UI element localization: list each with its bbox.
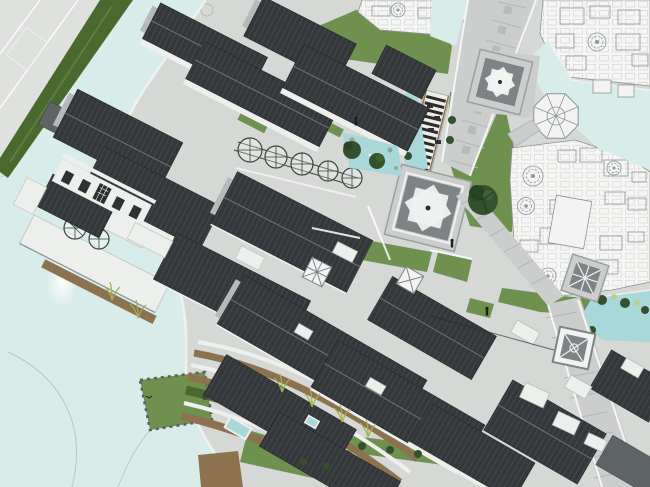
model-viewport[interactable]	[0, 0, 650, 487]
figure	[485, 307, 488, 316]
tree	[343, 141, 361, 159]
tree	[468, 185, 498, 215]
figure	[450, 239, 453, 248]
tree	[369, 153, 385, 169]
model-render	[0, 0, 650, 487]
street-medallion	[553, 327, 596, 370]
figure	[354, 117, 357, 126]
